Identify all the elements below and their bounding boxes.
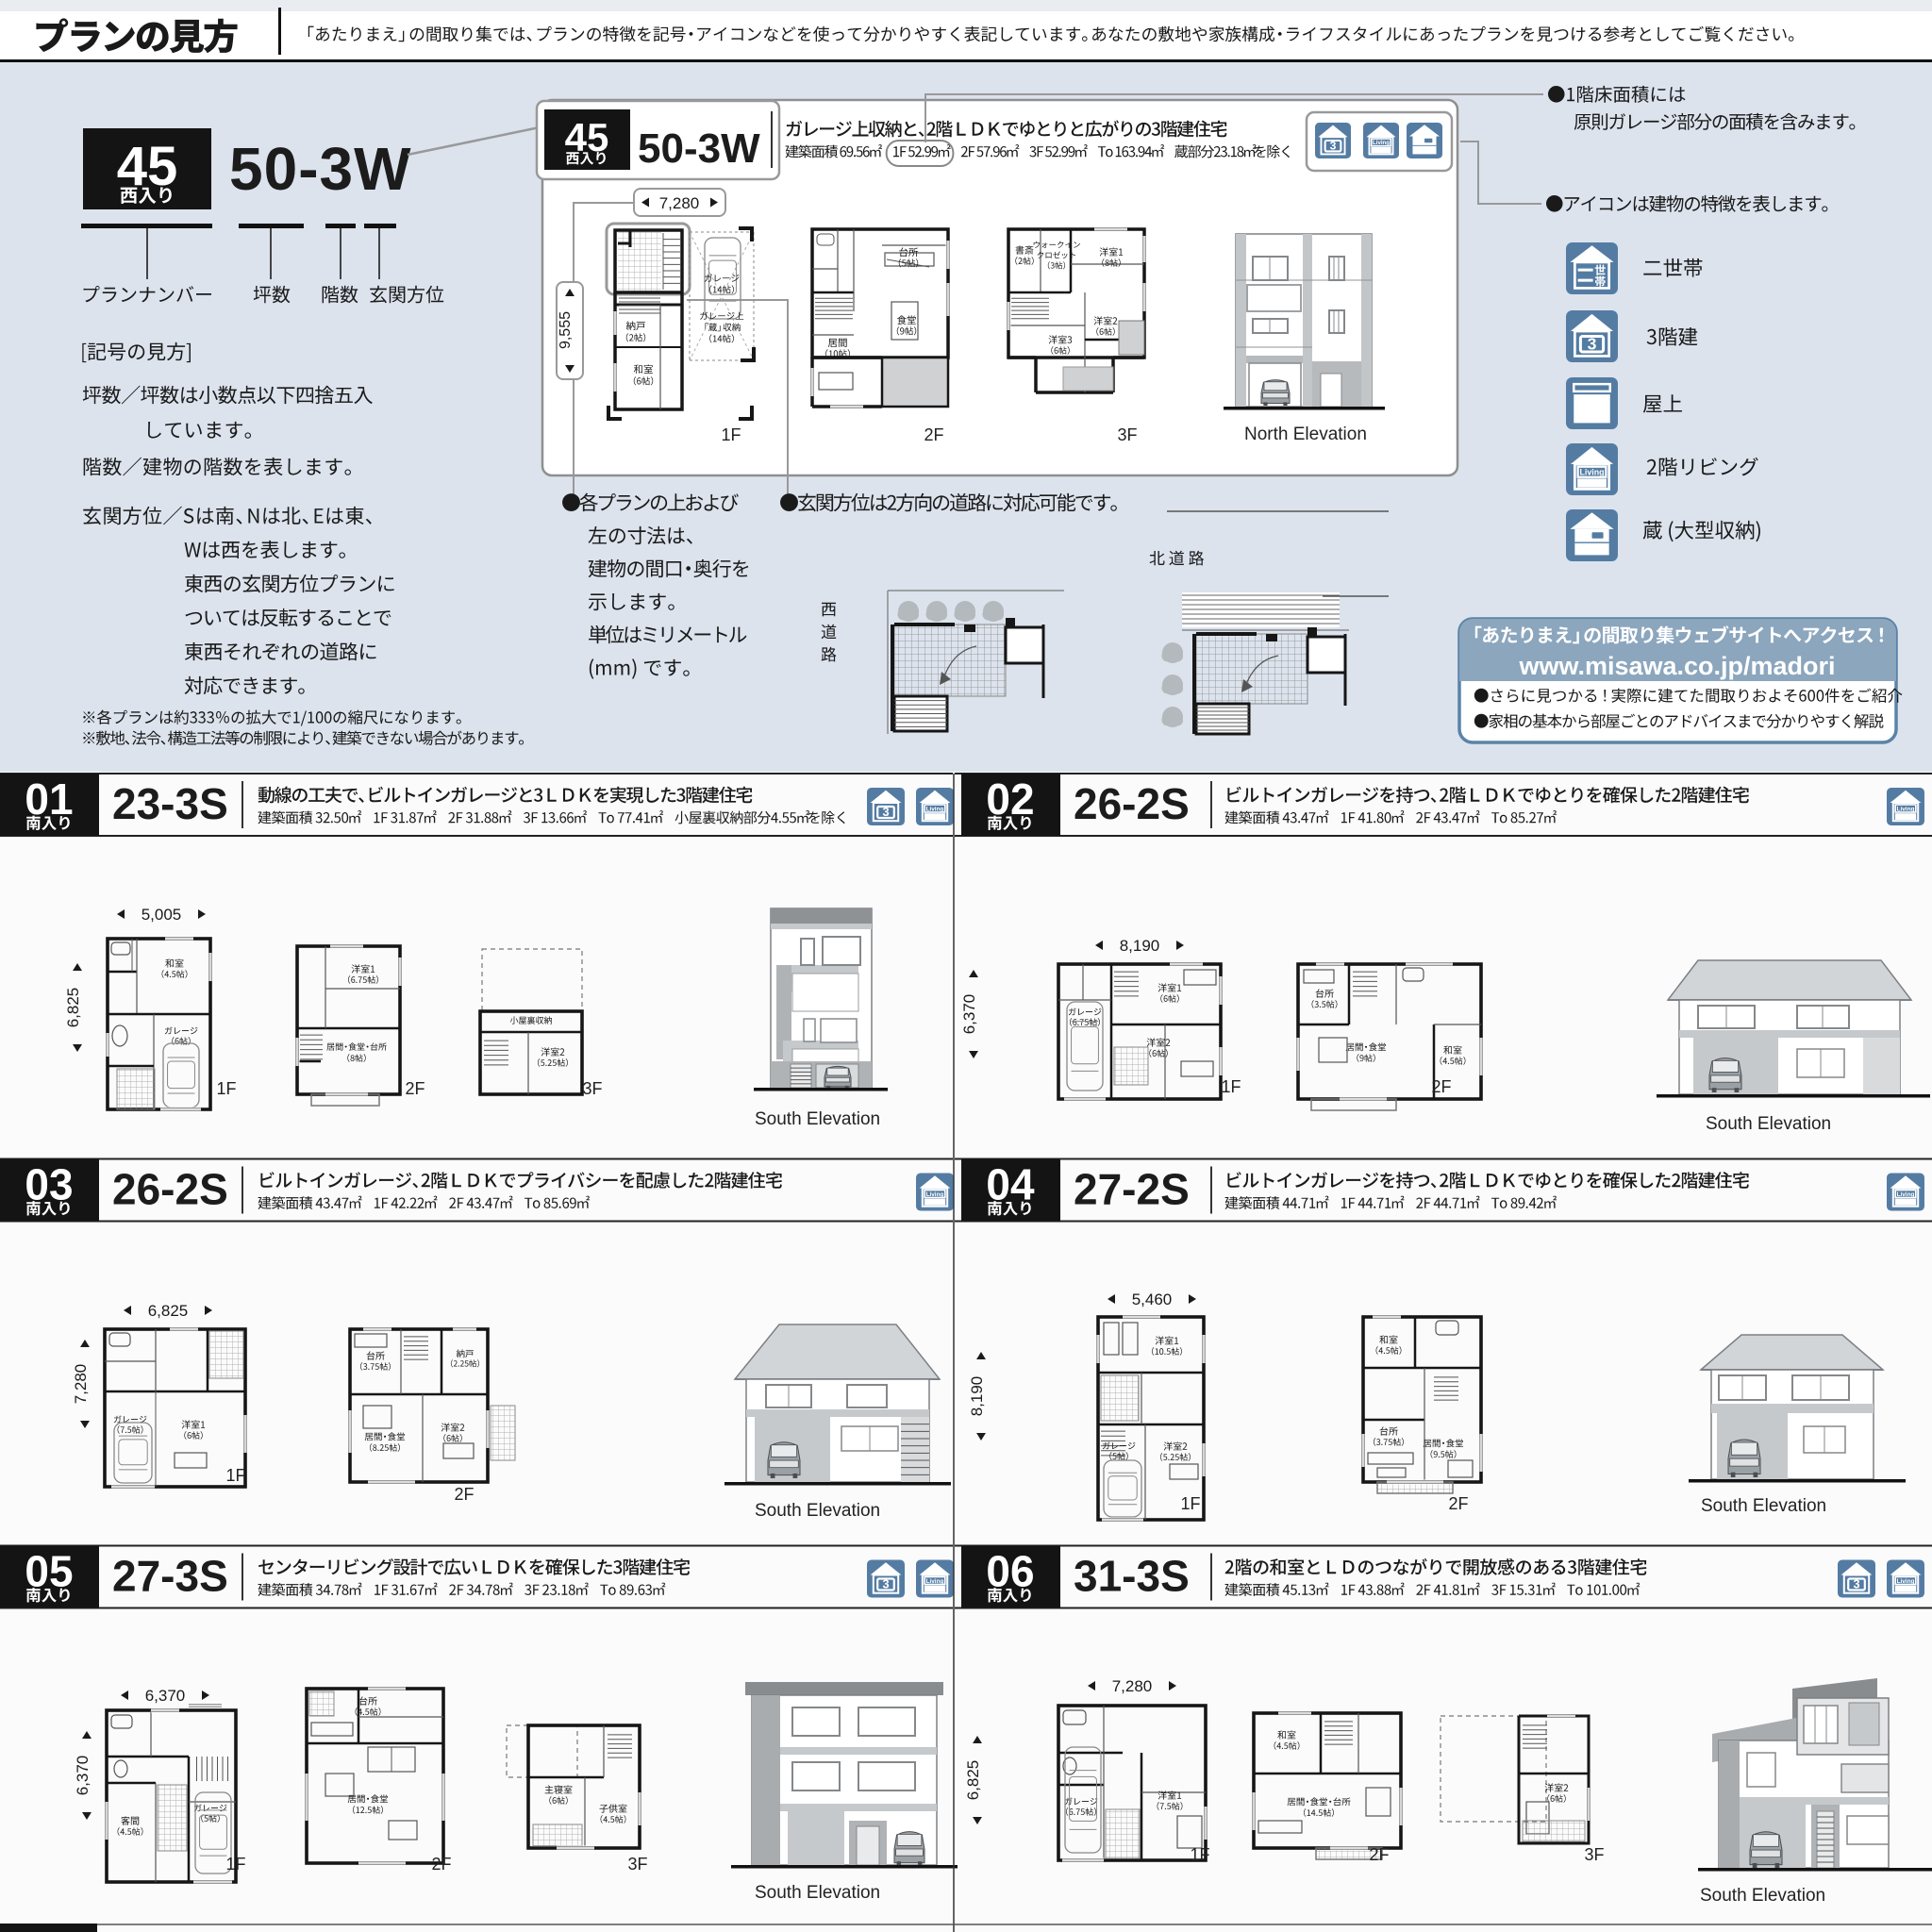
svg-text:31-3S: 31-3S xyxy=(1074,1552,1190,1601)
svg-text:Living: Living xyxy=(1897,1191,1915,1198)
svg-text:Living: Living xyxy=(926,1578,944,1585)
svg-text:South Elevation: South Elevation xyxy=(755,1883,880,1903)
svg-text:2F: 2F xyxy=(431,1855,451,1874)
svg-text:06: 06 xyxy=(986,1547,1034,1596)
svg-text:26-2S: 26-2S xyxy=(112,1165,228,1214)
svg-text:South Elevation: South Elevation xyxy=(755,1501,880,1521)
svg-text:6,825: 6,825 xyxy=(964,1760,982,1801)
svg-text:1F: 1F xyxy=(1221,1077,1241,1096)
svg-text:2F: 2F xyxy=(405,1079,425,1098)
svg-text:7,280: 7,280 xyxy=(1112,1677,1153,1695)
svg-text:1F: 1F xyxy=(216,1079,236,1098)
svg-text:Living: Living xyxy=(1897,1578,1915,1585)
svg-text:3: 3 xyxy=(882,1577,889,1591)
svg-text:1F: 1F xyxy=(225,1855,245,1874)
svg-text:1F: 1F xyxy=(1190,1845,1209,1864)
svg-text:7,280: 7,280 xyxy=(659,194,700,212)
svg-text:1F: 1F xyxy=(721,425,741,444)
svg-text:Living: Living xyxy=(1373,140,1390,146)
svg-text:3F: 3F xyxy=(1117,425,1137,444)
svg-text:6,825: 6,825 xyxy=(148,1302,189,1320)
svg-text:South Elevation: South Elevation xyxy=(1701,1496,1826,1516)
svg-text:3: 3 xyxy=(1330,140,1337,153)
svg-text:www.misawa.co.jp/madori: www.misawa.co.jp/madori xyxy=(1518,652,1835,680)
svg-text:04: 04 xyxy=(986,1160,1035,1209)
svg-text:North Elevation: North Elevation xyxy=(1244,425,1367,444)
svg-text:South Elevation: South Elevation xyxy=(755,1109,880,1129)
svg-text:2F: 2F xyxy=(924,425,943,444)
svg-text:50-3W: 50-3W xyxy=(638,125,760,172)
svg-text:6,370: 6,370 xyxy=(960,994,978,1035)
svg-text:27-3S: 27-3S xyxy=(112,1552,228,1601)
svg-text:9,555: 9,555 xyxy=(558,311,574,349)
svg-text:50-3W: 50-3W xyxy=(229,135,412,203)
svg-text:23-3S: 23-3S xyxy=(112,779,228,828)
svg-text:South Elevation: South Elevation xyxy=(1700,1886,1825,1906)
svg-text:2F: 2F xyxy=(1431,1077,1451,1096)
svg-text:Living: Living xyxy=(1897,806,1915,812)
svg-text:26-2S: 26-2S xyxy=(1074,779,1190,828)
svg-text:Living: Living xyxy=(926,806,944,812)
svg-text:01: 01 xyxy=(25,774,73,824)
svg-text:27-2S: 27-2S xyxy=(1074,1165,1190,1214)
svg-text:05: 05 xyxy=(25,1547,73,1596)
svg-text:6,370: 6,370 xyxy=(145,1687,186,1705)
svg-text:3: 3 xyxy=(1853,1577,1859,1591)
svg-text:3F: 3F xyxy=(627,1855,647,1874)
svg-text:South Elevation: South Elevation xyxy=(1706,1114,1831,1134)
svg-text:1F: 1F xyxy=(1180,1494,1200,1513)
svg-text:5,005: 5,005 xyxy=(142,906,182,924)
svg-text:8,190: 8,190 xyxy=(1120,937,1160,955)
svg-text:Living: Living xyxy=(1580,468,1605,477)
svg-text:03: 03 xyxy=(25,1160,73,1209)
svg-text:2F: 2F xyxy=(1369,1845,1389,1864)
svg-text:2F: 2F xyxy=(454,1485,474,1504)
svg-text:6,825: 6,825 xyxy=(64,988,82,1028)
svg-text:3F: 3F xyxy=(1584,1845,1604,1864)
svg-text:2F: 2F xyxy=(1448,1494,1468,1513)
svg-text:3: 3 xyxy=(1588,335,1597,354)
svg-text:1F: 1F xyxy=(225,1466,245,1485)
svg-text:02: 02 xyxy=(986,774,1034,824)
svg-text:5,460: 5,460 xyxy=(1132,1291,1173,1308)
svg-text:3: 3 xyxy=(882,805,889,819)
svg-text:Living: Living xyxy=(926,1191,944,1198)
svg-text:7,280: 7,280 xyxy=(72,1364,90,1405)
svg-text:6,370: 6,370 xyxy=(74,1756,92,1796)
svg-text:8,190: 8,190 xyxy=(968,1376,986,1417)
svg-text:3F: 3F xyxy=(582,1079,602,1098)
